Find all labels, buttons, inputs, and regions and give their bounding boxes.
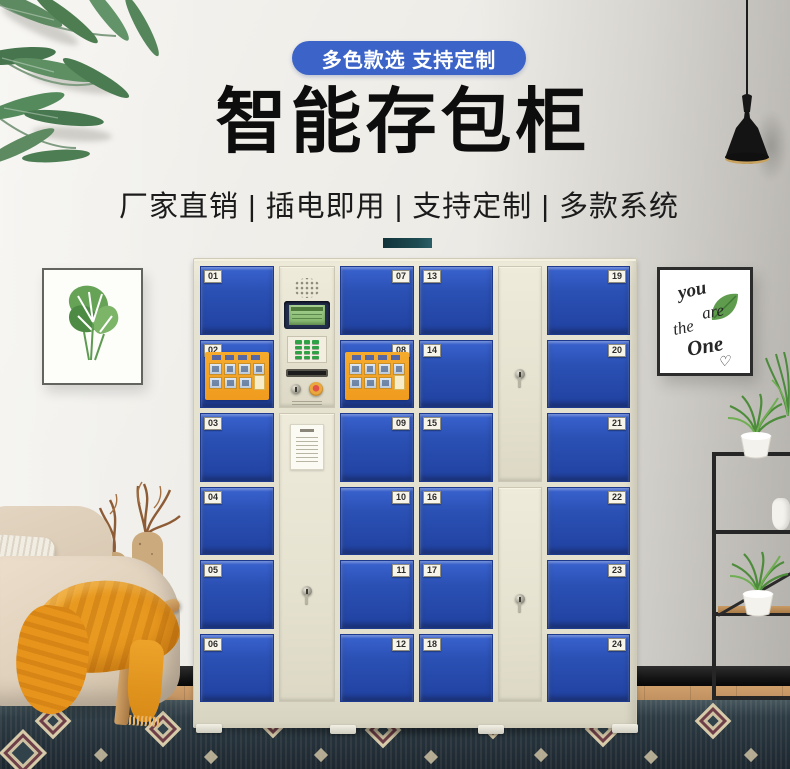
instruction-sticker <box>205 352 269 400</box>
rug-motif-small <box>534 748 548 762</box>
door-number-badge: 07 <box>392 270 410 283</box>
teal-divider <box>383 238 432 248</box>
locker-door: 02 <box>200 340 274 409</box>
key-icon <box>518 603 521 612</box>
notice-sheet <box>290 424 324 470</box>
locker-door: 21 <box>547 413 630 482</box>
locker-door: 13 <box>419 266 493 335</box>
key-icon <box>518 378 521 387</box>
side-door <box>498 487 542 703</box>
keypad <box>287 336 327 363</box>
locker-door: 12 <box>340 634 414 703</box>
door-number-badge: 16 <box>423 491 441 504</box>
rug-motif-small <box>424 750 438 764</box>
door-number-badge: 03 <box>204 417 222 430</box>
locker-door: 07 <box>340 266 414 335</box>
door-number-badge: 20 <box>608 344 626 357</box>
locker-door: 03 <box>200 413 274 482</box>
locker-door: 15 <box>419 413 493 482</box>
door-number-badge: 15 <box>423 417 441 430</box>
instruction-sticker <box>345 352 409 400</box>
cabinet-foot <box>330 725 356 734</box>
door-number-badge: 12 <box>392 638 410 651</box>
lcd-display <box>289 305 325 325</box>
keyhole-icon <box>515 594 525 604</box>
door-number-badge: 13 <box>423 270 441 283</box>
door-number-badge: 11 <box>392 564 410 577</box>
door-number-badge: 22 <box>608 491 626 504</box>
control-panel <box>279 266 335 408</box>
page-title: 智能存包柜 <box>0 84 790 162</box>
smart-locker-cabinet: 01 02 03 04 05 06 <box>193 258 637 728</box>
speaker-grille-icon <box>294 278 320 298</box>
locker-door: 05 <box>200 560 274 629</box>
locker-door: 20 <box>547 340 630 409</box>
keyhole-icon <box>291 384 301 394</box>
locker-door: 11 <box>340 560 414 629</box>
door-number-badge: 14 <box>423 344 441 357</box>
side-door <box>498 266 542 482</box>
monstera-leaves-icon <box>60 282 126 368</box>
door-number-badge: 09 <box>392 417 410 430</box>
rug-motif-small <box>314 748 328 762</box>
cabinet-foot <box>478 725 504 734</box>
door-number-badge: 19 <box>608 270 626 283</box>
door-number-badge: 10 <box>392 491 410 504</box>
locker-door: 16 <box>419 487 493 556</box>
locker-door: 10 <box>340 487 414 556</box>
shelf-bar <box>716 696 790 700</box>
rug-motif <box>0 729 47 769</box>
door-number-badge: 23 <box>608 564 626 577</box>
door-number-badge: 04 <box>204 491 222 504</box>
rug-motif-small <box>644 750 658 764</box>
shelf-bar <box>716 530 790 534</box>
subtitle: 厂家直销 | 插电即用 | 支持定制 | 多款系统 <box>0 183 790 225</box>
locker-door: 08 <box>340 340 414 409</box>
door-number-badge: 21 <box>608 417 626 430</box>
keyhole-icon <box>302 586 312 596</box>
lcd-screen <box>284 301 330 329</box>
potted-plant <box>726 548 790 618</box>
sticker-note <box>394 375 405 390</box>
ticket-slot <box>286 369 328 377</box>
locker-door: 18 <box>419 634 493 703</box>
door-number-badge: 24 <box>608 638 626 651</box>
locker-door: 24 <box>547 634 630 703</box>
locker-grid: 01 02 03 04 05 06 <box>200 266 630 702</box>
locker-door: 22 <box>547 487 630 556</box>
wall-art-script: you are the One ♡ <box>657 267 753 376</box>
door-number-badge: 05 <box>204 564 222 577</box>
locker-door: 17 <box>419 560 493 629</box>
art-word: you <box>676 277 708 304</box>
locker-door: 09 <box>340 413 414 482</box>
rug-motif-small <box>94 748 108 762</box>
cabinet-foot <box>612 724 638 733</box>
panel-lock-row <box>291 382 323 396</box>
door-number-badge: 18 <box>423 638 441 651</box>
sticker-header <box>212 355 262 360</box>
rug-motif-small <box>744 748 758 762</box>
panel-fine-print <box>292 401 322 407</box>
locker-door: 19 <box>547 266 630 335</box>
locker-door: 04 <box>200 487 274 556</box>
emergency-button <box>309 382 323 396</box>
keyhole-icon <box>515 369 525 379</box>
white-vase <box>772 498 790 530</box>
service-door <box>279 413 335 702</box>
rug-motif <box>695 703 732 740</box>
rug-motif-small <box>204 750 218 764</box>
sticker-note <box>254 375 265 390</box>
door-number-badge: 06 <box>204 638 222 651</box>
promo-badge: 多色款选 支持定制 <box>292 41 526 75</box>
key-icon <box>305 595 308 604</box>
grass-plant <box>764 352 790 416</box>
art-word: are <box>700 300 725 324</box>
cabinet-foot <box>196 724 222 733</box>
heart-icon: ♡ <box>717 353 732 372</box>
door-number-badge: 01 <box>204 270 222 283</box>
locker-door: 06 <box>200 634 274 703</box>
locker-door: 01 <box>200 266 274 335</box>
blanket-fringe <box>129 715 160 727</box>
product-banner-scene: 多色款选 支持定制 智能存包柜 厂家直销 | 插电即用 | 支持定制 | 多款系… <box>0 0 790 769</box>
locker-door: 23 <box>547 560 630 629</box>
locker-door: 14 <box>419 340 493 409</box>
sticker-header <box>352 355 402 360</box>
door-number-badge: 17 <box>423 564 441 577</box>
wall-art-monstera <box>42 268 143 385</box>
